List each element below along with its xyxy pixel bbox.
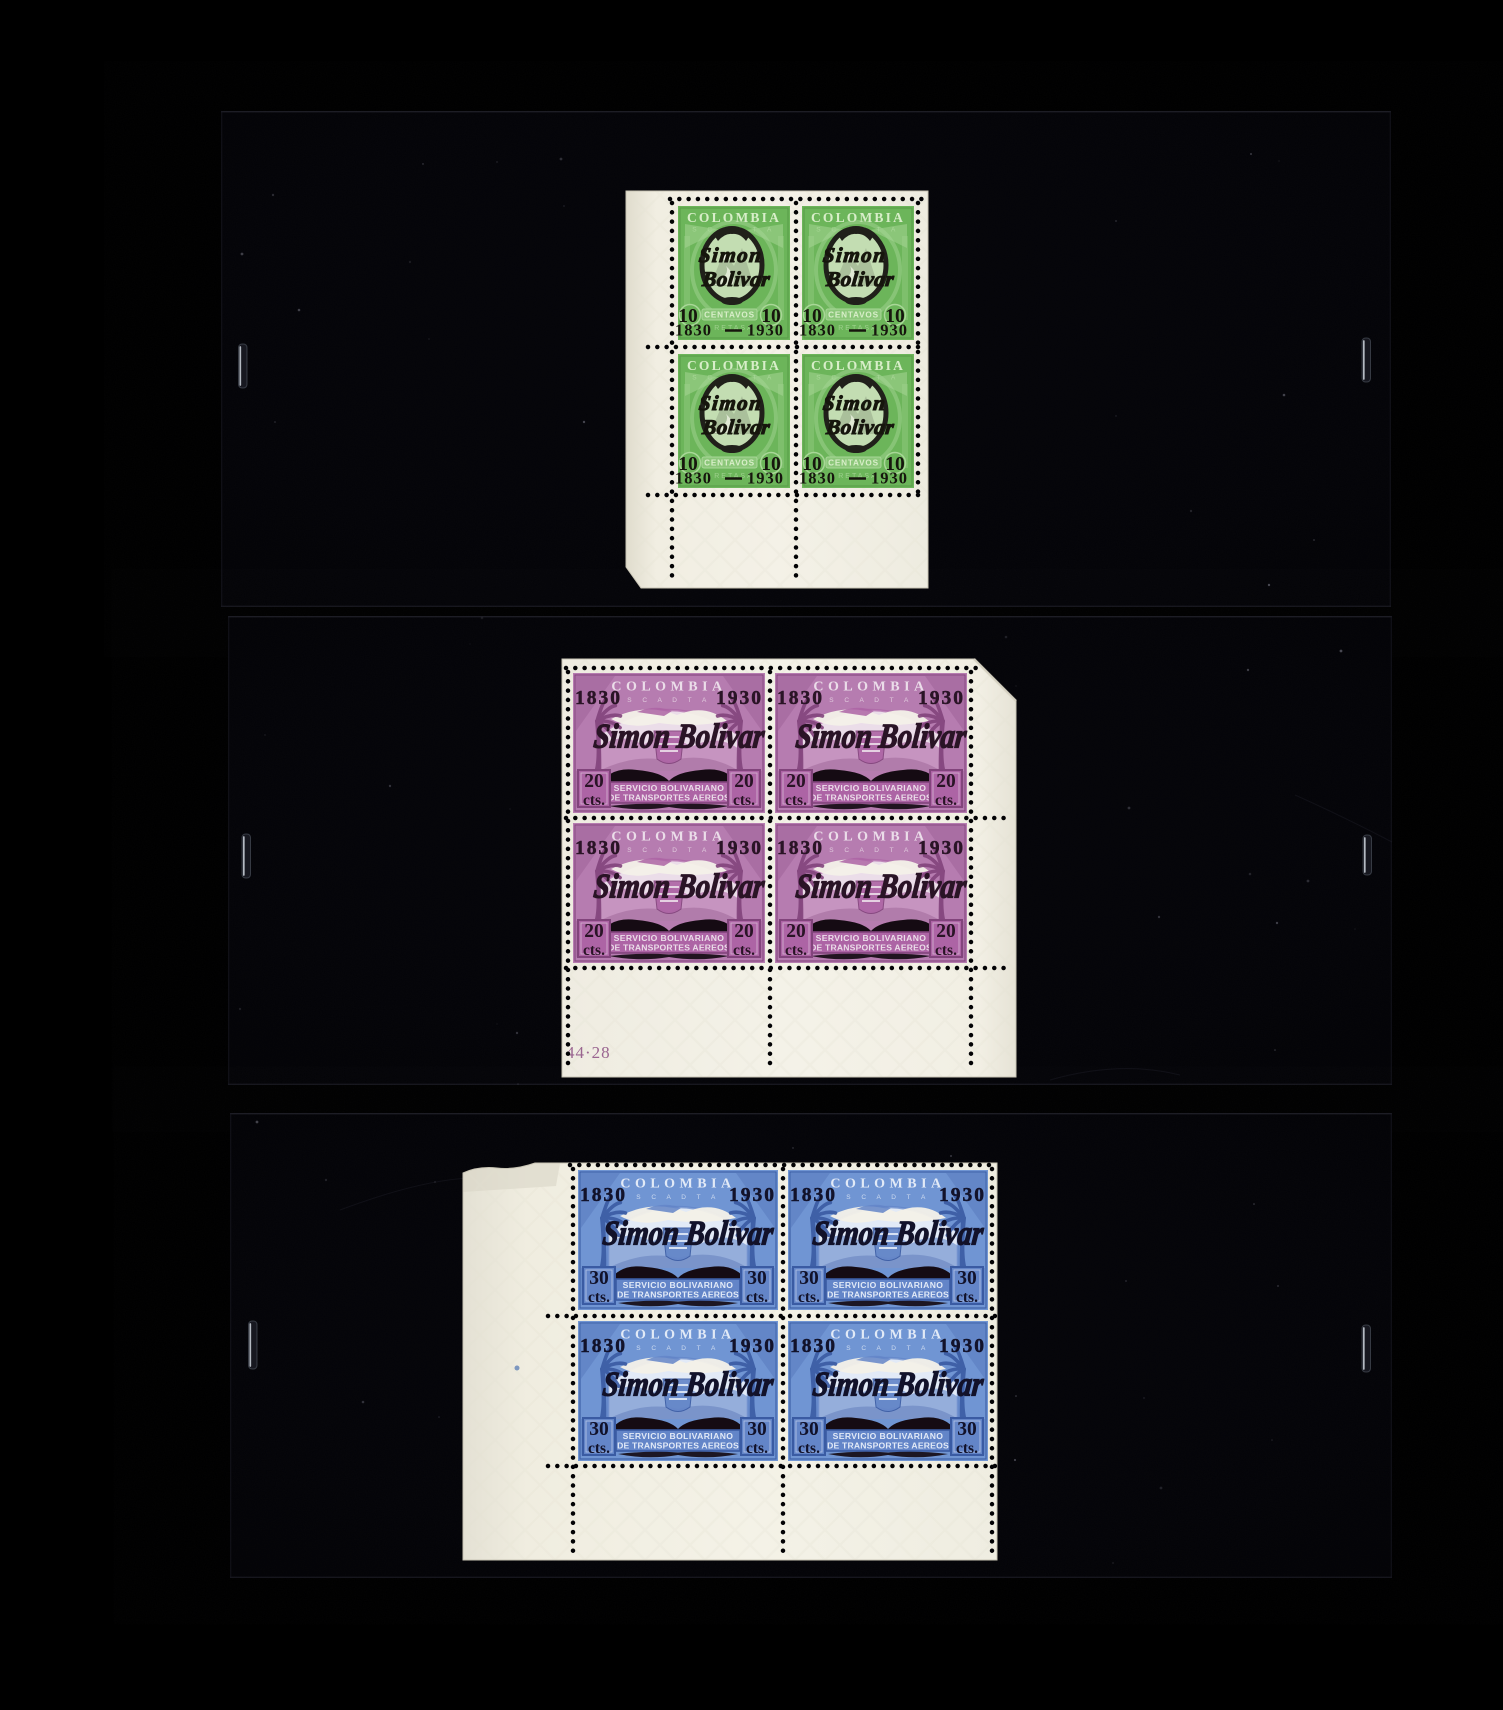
svg-text:44·28: 44·28 (566, 1043, 611, 1062)
